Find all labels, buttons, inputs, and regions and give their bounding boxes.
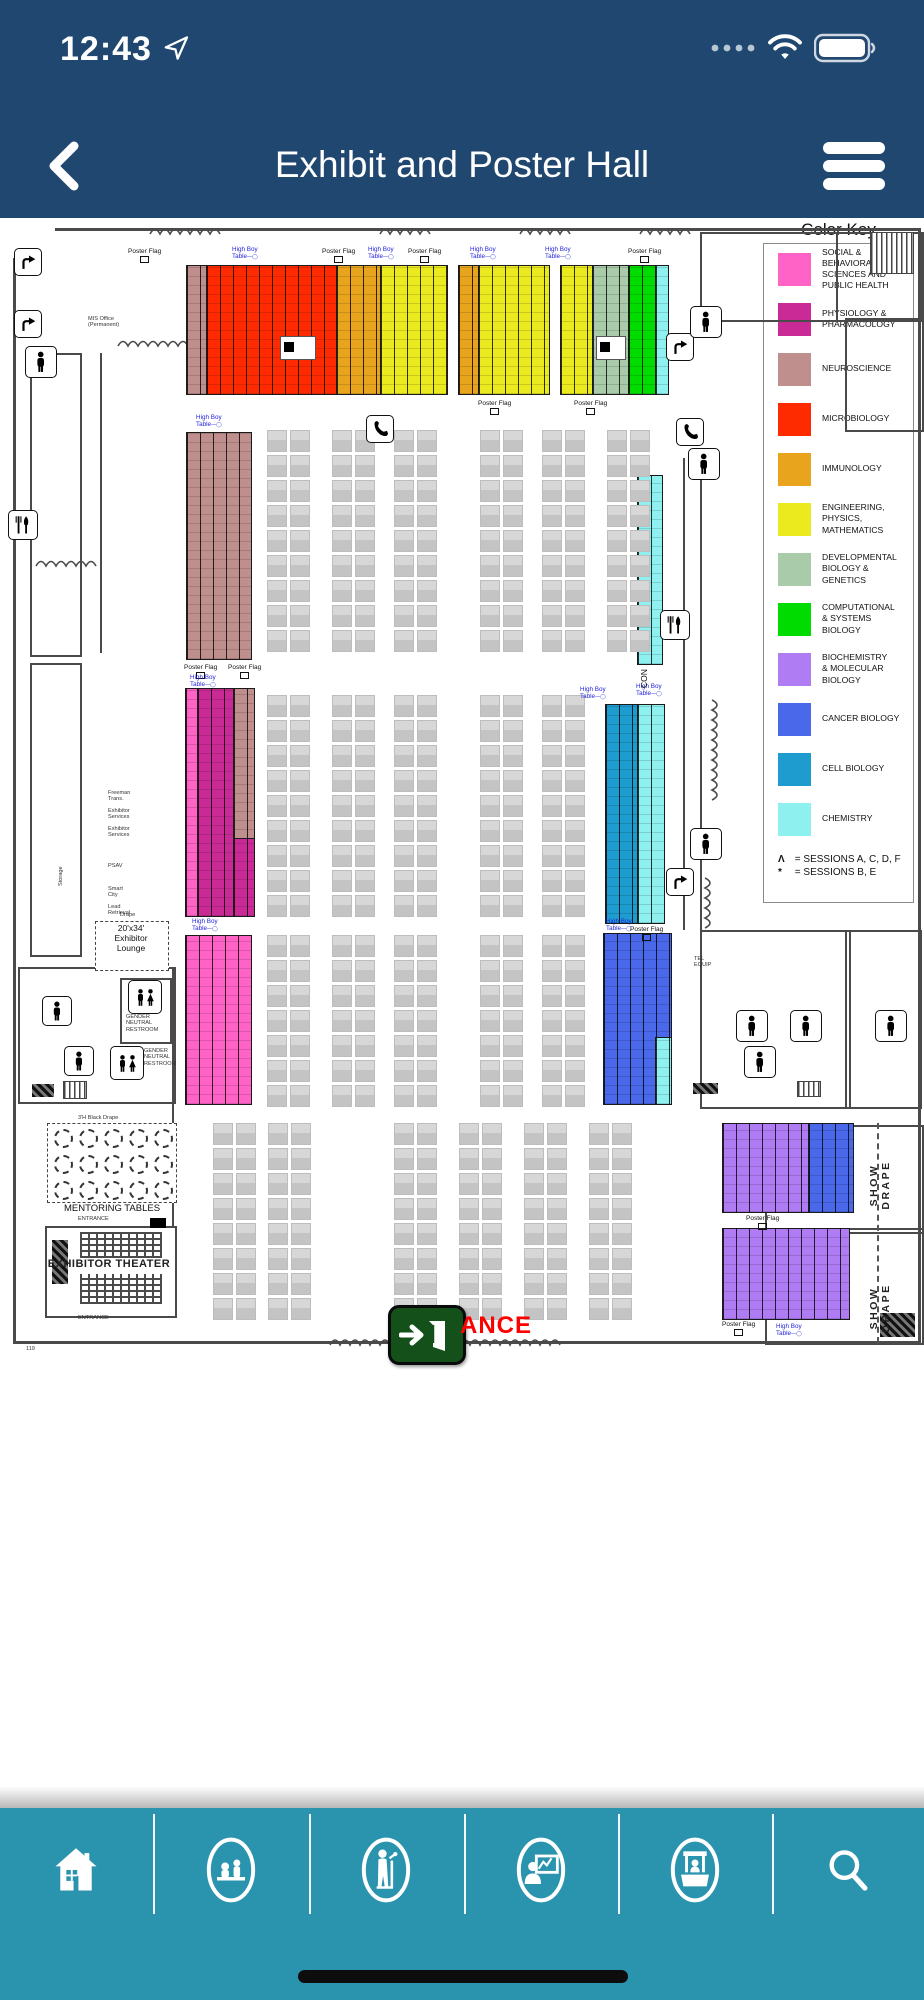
booth: [332, 555, 352, 577]
booth: [267, 605, 287, 627]
booth: [565, 505, 585, 527]
booth: [547, 1198, 567, 1220]
booth: [268, 1198, 288, 1220]
map-label: SHOW DRAPE: [868, 1280, 892, 1336]
booth: [503, 985, 523, 1007]
restroom-icon: [790, 1010, 822, 1042]
poster-row-block: [233, 688, 255, 840]
map-label: GENDER NEUTRAL RESTROOM: [126, 1014, 158, 1033]
booth: [332, 770, 352, 792]
booth: [290, 530, 310, 552]
booth-grid: [542, 935, 585, 1107]
booth: [355, 960, 375, 982]
booth-grid: [267, 695, 310, 917]
booth: [267, 580, 287, 602]
legend-label: CHEMISTRY: [822, 813, 872, 824]
booth: [480, 985, 500, 1007]
poster-row-block: [380, 265, 448, 395]
booth: [355, 845, 375, 867]
escalator-arrow-icon-glyph: [18, 314, 38, 334]
booth: [290, 580, 310, 602]
booth: [480, 870, 500, 892]
booth: [290, 1085, 310, 1107]
booth: [612, 1198, 632, 1220]
toolbar-attendees-button[interactable]: [186, 1828, 276, 1912]
poster-row-block: [336, 265, 382, 395]
booth: [417, 820, 437, 842]
toolbar-separator: [464, 1814, 466, 1914]
map-label: Smart City: [108, 886, 123, 899]
booth: [267, 1035, 287, 1057]
restroom-icon-glyph: [694, 310, 717, 333]
booth: [394, 1173, 414, 1195]
map-label: High Boy Table: [776, 1323, 802, 1338]
map-label: Poster Flag: [746, 1215, 779, 1230]
booth: [524, 1198, 544, 1220]
booth: [417, 795, 437, 817]
booth: [480, 935, 500, 957]
booth: [355, 1085, 375, 1107]
header-bar: 12:43 Exhibit and Poster Hall: [0, 0, 924, 218]
booth-grid: [213, 1123, 256, 1320]
booth: [394, 1223, 414, 1245]
booth: [417, 580, 437, 602]
poster-row-block: [655, 1037, 672, 1105]
booth-grid: [607, 430, 650, 652]
restroom-icon-glyph: [879, 1014, 902, 1037]
booth: [503, 505, 523, 527]
booth: [524, 1173, 544, 1195]
booth: [417, 745, 437, 767]
booth: [542, 985, 562, 1007]
booth: [394, 820, 414, 842]
booth: [565, 1085, 585, 1107]
booth: [332, 720, 352, 742]
booth: [355, 455, 375, 477]
map-label: Storage: [58, 866, 64, 886]
theater-seats: [80, 1232, 162, 1258]
booth: [268, 1123, 288, 1145]
booth: [503, 580, 523, 602]
drape-squiggle: [640, 224, 690, 236]
booth: [482, 1248, 502, 1270]
booth: [482, 1223, 502, 1245]
booth: [213, 1223, 233, 1245]
booth: [482, 1273, 502, 1295]
booth: [480, 820, 500, 842]
booth: [607, 605, 627, 627]
booth: [332, 630, 352, 652]
map-label: ENTRANCE: [78, 1216, 109, 1222]
booth: [459, 1148, 479, 1170]
mentoring-table: [129, 1155, 148, 1174]
map-label: EXHIBITOR THEATER: [45, 1258, 173, 1271]
map-label: GENDER NEUTRAL RESTROOM: [144, 1048, 176, 1067]
booth: [607, 430, 627, 452]
map-label: High Boy Table: [190, 674, 216, 689]
map-label: 3'H Black Drape: [78, 1115, 118, 1121]
booth: [291, 1248, 311, 1270]
mentoring-table: [79, 1129, 98, 1148]
restroom-icon-glyph: [46, 1000, 68, 1022]
mentoring-table: [129, 1129, 148, 1148]
booth: [565, 960, 585, 982]
booth: [542, 745, 562, 767]
booth: [355, 820, 375, 842]
booth: [565, 1060, 585, 1082]
poster-row-block: [592, 265, 630, 395]
home-indicator[interactable]: [298, 1970, 628, 1983]
booth: [417, 1035, 437, 1057]
booth: [524, 1123, 544, 1145]
booth: [480, 630, 500, 652]
booth: [332, 1035, 352, 1057]
booth: [542, 770, 562, 792]
booth: [589, 1198, 609, 1220]
booth: [480, 1085, 500, 1107]
booth: [630, 505, 650, 527]
booth: [417, 1060, 437, 1082]
drape-squiggle: [703, 878, 716, 928]
booth: [290, 845, 310, 867]
toolbar-speakers-button[interactable]: [341, 1828, 431, 1912]
booth: [589, 1273, 609, 1295]
wifi-icon: [766, 32, 804, 62]
booth: [589, 1148, 609, 1170]
booth: [417, 1085, 437, 1107]
map-label: MENTORING TABLES: [48, 1204, 176, 1215]
booth: [565, 530, 585, 552]
floor-plan-map[interactable]: Color Key SOCIAL & BEHAVIORAL SCIENCES A…: [0, 218, 924, 1790]
booth: [565, 580, 585, 602]
booth: [332, 480, 352, 502]
escalator-arrow-icon: [666, 868, 694, 896]
restroom-icon-glyph: [68, 1050, 90, 1072]
booth: [547, 1248, 567, 1270]
map-label: High Boy Table: [580, 686, 606, 701]
booth: [612, 1248, 632, 1270]
booth: [547, 1173, 567, 1195]
booth: [417, 480, 437, 502]
map-label: High Boy Table: [470, 246, 496, 261]
hamburger-menu-button[interactable]: [823, 142, 885, 194]
booth: [480, 580, 500, 602]
menu-bar: [823, 142, 885, 154]
booth: [565, 605, 585, 627]
booth: [236, 1198, 256, 1220]
menu-bar: [823, 178, 885, 190]
booth: [417, 695, 437, 717]
booth: [630, 480, 650, 502]
booth: [524, 1248, 544, 1270]
battery-icon: [814, 33, 878, 63]
mentoring-table: [79, 1181, 98, 1200]
booth: [589, 1248, 609, 1270]
booth: [355, 985, 375, 1007]
booth: [565, 555, 585, 577]
booth: [394, 745, 414, 767]
map-label: Poster Flag: [722, 1321, 755, 1336]
booth-grid: [267, 935, 310, 1107]
booth: [503, 605, 523, 627]
map-label: High Boy Table: [606, 918, 632, 933]
toolbar-separator: [618, 1814, 620, 1914]
booth: [291, 1173, 311, 1195]
poster-row-block: [186, 265, 208, 395]
booth: [291, 1198, 311, 1220]
booth: [480, 505, 500, 527]
legend-item-immunology: IMMUNOLOGY: [764, 444, 913, 494]
mentoring-table: [154, 1155, 173, 1174]
search-icon: [819, 1841, 877, 1899]
booth-grid: [480, 695, 523, 917]
booth: [267, 555, 287, 577]
booth: [565, 720, 585, 742]
booth: [417, 1273, 437, 1295]
booth: [332, 1010, 352, 1032]
room-outline: [845, 318, 924, 432]
hatched-area: [693, 1083, 718, 1094]
booth: [291, 1123, 311, 1145]
booth: [630, 555, 650, 577]
booth: [213, 1123, 233, 1145]
booth: [547, 1273, 567, 1295]
booth: [565, 795, 585, 817]
cutout-marker: [284, 342, 294, 352]
booth: [394, 605, 414, 627]
restroom-icon-glyph: [748, 1050, 771, 1073]
phone-icon: [366, 415, 394, 443]
booth: [332, 1085, 352, 1107]
booth: [542, 480, 562, 502]
booth: [542, 870, 562, 892]
mentoring-table: [104, 1155, 123, 1174]
booth: [290, 870, 310, 892]
mentoring-table: [54, 1181, 73, 1200]
cellular-dots-icon: [710, 40, 760, 54]
booth-grid: [542, 430, 585, 652]
booth: [332, 960, 352, 982]
booth: [290, 1010, 310, 1032]
booth: [542, 1035, 562, 1057]
booth: [268, 1173, 288, 1195]
phone-icon-glyph: [370, 419, 390, 439]
booth: [268, 1298, 288, 1320]
restroom-icon: [690, 828, 722, 860]
booth: [524, 1273, 544, 1295]
booth: [394, 1035, 414, 1057]
mentoring-table: [129, 1181, 148, 1200]
restaurant-icon-glyph: [12, 514, 34, 536]
booth: [503, 770, 523, 792]
restroom-icon-glyph: [740, 1014, 763, 1037]
booth: [236, 1223, 256, 1245]
booth: [268, 1223, 288, 1245]
stairs: [797, 1081, 821, 1097]
map-label: High Boy Table: [368, 246, 394, 261]
booth: [267, 820, 287, 842]
booth: [480, 555, 500, 577]
booth: [459, 1223, 479, 1245]
toolbar-search-button[interactable]: [803, 1828, 893, 1912]
booth-grid: [268, 1123, 311, 1320]
booth: [503, 795, 523, 817]
booth: [394, 580, 414, 602]
booth: [290, 505, 310, 527]
booth: [213, 1198, 233, 1220]
booth: [355, 720, 375, 742]
restroom-double-icon-glyph: [115, 1051, 140, 1076]
restroom-icon-glyph: [692, 452, 715, 475]
booth: [542, 720, 562, 742]
booth: [267, 795, 287, 817]
toolbar-separator: [772, 1814, 774, 1914]
booth: [503, 845, 523, 867]
booth: [267, 985, 287, 1007]
booth: [503, 1010, 523, 1032]
toolbar-shadow: [0, 1786, 924, 1808]
menu-bar: [823, 160, 885, 172]
booth: [394, 1060, 414, 1082]
booth: [417, 455, 437, 477]
legend-item-chemistry: CHEMISTRY: [764, 794, 913, 844]
booth-grid: [480, 430, 523, 652]
booth: [417, 720, 437, 742]
booth: [332, 430, 352, 452]
poster-row-block: [233, 838, 255, 917]
toolbar-posters-button[interactable]: [496, 1828, 586, 1912]
booth: [394, 555, 414, 577]
booth: [267, 1060, 287, 1082]
booth: [547, 1148, 567, 1170]
booth: [482, 1198, 502, 1220]
booth: [589, 1123, 609, 1145]
toolbar-home-button[interactable]: [31, 1828, 121, 1912]
booth: [394, 770, 414, 792]
booth: [565, 1010, 585, 1032]
booth: [607, 555, 627, 577]
booth: [480, 455, 500, 477]
booth: [417, 960, 437, 982]
booth: [394, 960, 414, 982]
booth: [480, 480, 500, 502]
legend-item-computational: COMPUTATIONAL & SYSTEMS BIOLOGY: [764, 594, 913, 644]
booth: [332, 505, 352, 527]
booth: [394, 630, 414, 652]
restroom-icon: [688, 448, 720, 480]
booth: [589, 1298, 609, 1320]
restaurant-icon-glyph: [664, 614, 686, 636]
booth: [417, 845, 437, 867]
map-label: Exhibitor Services: [108, 826, 130, 839]
exit-door-glyph: [399, 1315, 455, 1355]
restroom-icon: [875, 1010, 907, 1042]
booth: [213, 1273, 233, 1295]
booth: [542, 1085, 562, 1107]
booth: [480, 1010, 500, 1032]
booth: [355, 1010, 375, 1032]
booth: [417, 430, 437, 452]
booth: [503, 530, 523, 552]
booth: [503, 720, 523, 742]
booth: [565, 895, 585, 917]
drape-squiggle: [330, 1334, 390, 1347]
booth: [355, 795, 375, 817]
restroom-icon: [690, 306, 722, 338]
mentoring-table: [54, 1155, 73, 1174]
booth: [565, 630, 585, 652]
booth: [612, 1273, 632, 1295]
booth: [565, 870, 585, 892]
theater-seats: [80, 1274, 162, 1304]
toolbar-separator: [153, 1814, 155, 1914]
booth: [565, 430, 585, 452]
wall: [683, 458, 685, 930]
map-label: CON: [640, 669, 650, 688]
poster-row-cutout: [596, 336, 626, 360]
attendees-icon: [203, 1835, 259, 1905]
restroom-icon: [744, 1046, 776, 1078]
booth: [394, 505, 414, 527]
restroom-double-icon: [110, 1046, 144, 1080]
booth: [607, 580, 627, 602]
poster-row-block: [808, 1123, 854, 1213]
booth: [267, 895, 287, 917]
map-label: Poster Flag: [228, 664, 261, 679]
booth: [394, 795, 414, 817]
booth: [612, 1148, 632, 1170]
booth: [630, 455, 650, 477]
booth: [480, 720, 500, 742]
legend-swatch-engineering: [778, 503, 811, 536]
legend-label: DEVELOPMENTAL BIOLOGY & GENETICS: [822, 552, 897, 586]
mentoring-table: [104, 1129, 123, 1148]
legend-notes: Λ = SESSIONS A, C, D, F* = SESSIONS B, E: [764, 852, 913, 878]
booth: [291, 1298, 311, 1320]
booth: [612, 1298, 632, 1320]
legend-swatch-biochemistry: [778, 653, 811, 686]
booth: [480, 845, 500, 867]
legend-label: CANCER BIOLOGY: [822, 713, 899, 724]
toolbar-exhibitors-button[interactable]: [650, 1828, 740, 1912]
poster-row-block: [478, 265, 550, 395]
phone-icon: [676, 418, 704, 446]
booth: [503, 455, 523, 477]
booth: [290, 820, 310, 842]
booth: [503, 1035, 523, 1057]
booth: [236, 1248, 256, 1270]
restroom-icon: [736, 1010, 768, 1042]
booth: [267, 935, 287, 957]
app-screen: 12:43 Exhibit and Poster Hall Color Key …: [0, 0, 924, 2000]
booth: [355, 580, 375, 602]
booth: [417, 1198, 437, 1220]
escalator-arrow-icon: [666, 333, 694, 361]
booth: [394, 1085, 414, 1107]
booth: [547, 1223, 567, 1245]
legend-swatch-cancer: [778, 703, 811, 736]
booth: [332, 795, 352, 817]
booth: [630, 630, 650, 652]
booth: [291, 1148, 311, 1170]
poster-row-cutout: [280, 336, 316, 360]
map-label: ENTRANCE: [78, 1315, 109, 1321]
booth: [355, 1060, 375, 1082]
drape-squiggle: [150, 224, 220, 236]
map-label: High Boy Table: [196, 414, 222, 429]
legend-label: ENGINEERING, PHYSICS, MATHEMATICS: [822, 502, 885, 536]
map-label: MIS Office (Permanent): [88, 316, 119, 329]
